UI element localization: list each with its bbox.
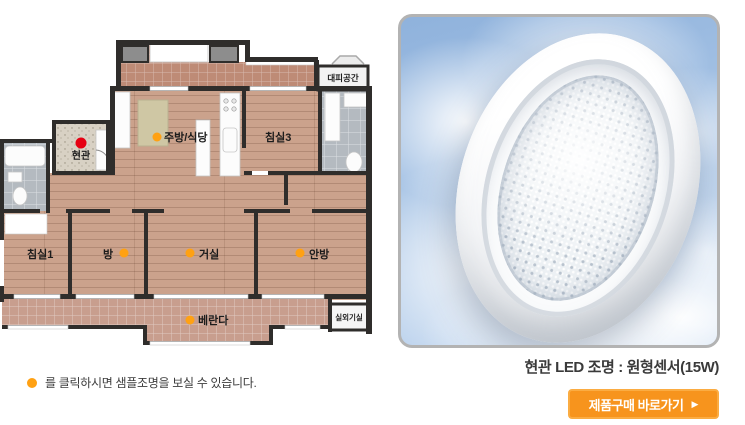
marker-entrance[interactable]: [76, 138, 87, 149]
product-image: [398, 14, 720, 348]
product-caption: 현관 LED 조명 : 원형센서(15W): [525, 356, 720, 377]
label-bedroom3: 침실3: [265, 130, 291, 144]
buy-button[interactable]: 제품구매 바로가기 ▶: [568, 389, 719, 419]
legend-dot-icon: [27, 378, 37, 388]
evacuation-door-mark: [332, 56, 364, 64]
marker-kitchen-dining[interactable]: [153, 133, 162, 142]
legend-note: 를 클릭하시면 샘플조명을 보실 수 있습니다.: [27, 374, 257, 391]
marker-room[interactable]: [120, 249, 129, 258]
arrow-right-icon: ▶: [691, 399, 698, 410]
label-room: 방: [103, 247, 113, 261]
label-veranda: 베란다: [198, 313, 229, 327]
buy-button-label: 제품구매 바로가기: [589, 395, 684, 414]
label-bedroom1: 침실1: [27, 247, 53, 261]
label-entrance: 현관: [72, 149, 91, 162]
marker-living-room[interactable]: [186, 249, 195, 258]
marker-veranda[interactable]: [186, 316, 195, 325]
legend-note-text: 를 클릭하시면 샘플조명을 보실 수 있습니다.: [45, 374, 257, 391]
floor-plan: 대피공간 주방/식당 침실3 현관 침실1 방 거실 안방 베란다 실외기실: [0, 0, 378, 352]
marker-master-bedroom[interactable]: [296, 249, 305, 258]
label-kitchen-dining: 주방/식당: [164, 130, 208, 144]
label-master-bedroom: 안방: [309, 247, 329, 261]
label-outdoor-unit-room: 실외기실: [335, 312, 363, 322]
page: 대피공간 주방/식당 침실3 현관 침실1 방 거실 안방 베란다 실외기실 를…: [0, 0, 745, 425]
hallway-floor: [50, 173, 370, 213]
label-living-room: 거실: [199, 247, 219, 261]
label-evacuation-space: 대피공간: [327, 73, 358, 83]
